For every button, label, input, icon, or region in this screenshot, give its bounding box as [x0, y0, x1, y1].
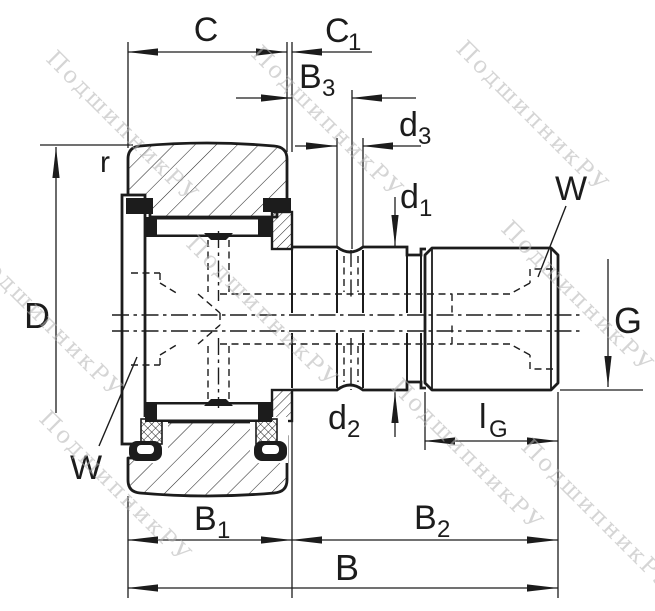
dim-label-C: C	[194, 11, 219, 49]
seal-strip-top-right	[263, 198, 291, 212]
watermark-text: ПодшипникРУ	[41, 46, 204, 209]
dimension-r: r	[100, 146, 110, 179]
watermark-text: ПодшипникРУ	[181, 231, 344, 394]
seal-strip-top-left	[126, 198, 153, 214]
dim-label-lG: lG	[479, 398, 508, 443]
dim-label-r: r	[100, 146, 110, 179]
bearing-section-drawing: C C1 B3 d3 d1 d2 D r G lG B1	[0, 0, 655, 611]
drawing-canvas: C C1 B3 d3 d1 d2 D r G lG B1	[0, 0, 655, 611]
dimension-d2: d2	[328, 392, 395, 443]
dim-label-C1: C1	[325, 12, 361, 56]
right-flange-bottom	[272, 390, 292, 421]
dim-label-d2: d2	[328, 399, 360, 443]
seal-bottom-right	[250, 417, 288, 463]
dim-label-d3: d3	[399, 106, 431, 150]
watermark-text: ПодшипникРУ	[451, 36, 614, 199]
left-side-plate	[122, 195, 145, 444]
right-flange-top	[272, 212, 292, 249]
dim-label-B1: B1	[194, 500, 230, 544]
dim-label-B2: B2	[414, 499, 450, 543]
watermark-text: ПодшипникРУ	[0, 241, 129, 404]
dimension-C1: C1	[292, 12, 372, 56]
dim-label-B: B	[335, 547, 359, 588]
dimension-D: D	[24, 147, 56, 413]
